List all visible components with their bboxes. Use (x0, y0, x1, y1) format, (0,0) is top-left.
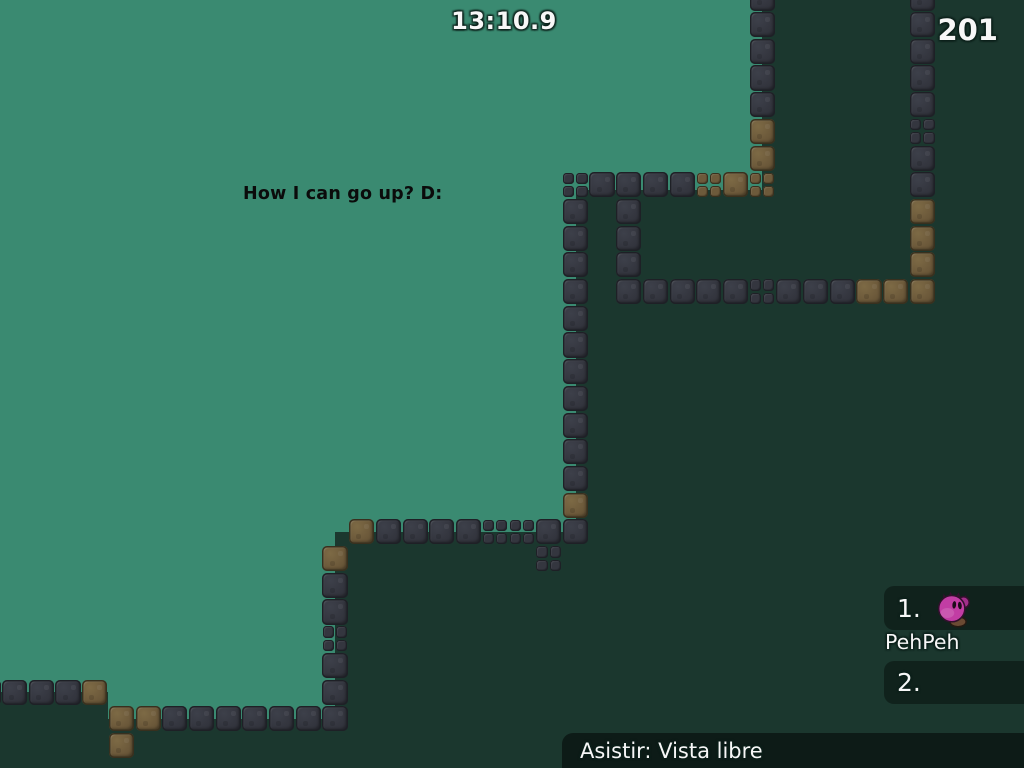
map-tile-dark-block (589, 172, 614, 197)
map-tile-dark-block (563, 386, 588, 411)
map-tile-dark-block (616, 199, 641, 224)
map-tile-small-dark-2x2 (750, 279, 775, 304)
map-tile-dark-block (162, 706, 187, 731)
rank-2-label: 2. (897, 668, 921, 697)
map-tile-dark-block (322, 706, 347, 731)
map-tile-dark-block (189, 706, 214, 731)
map-tile-dark-block (910, 146, 935, 171)
map-tile-small-brown-2x2 (750, 172, 775, 197)
map-tile-dark-block (322, 653, 347, 678)
leaderboard-entry-2: 2. (884, 661, 1024, 704)
map-tile-dark-block (322, 599, 347, 624)
map-tile-small-dark-2x2 (536, 546, 561, 571)
map-tile-dark-block (429, 519, 454, 544)
spectate-mode-label: Asistir: Vista libre (580, 739, 763, 763)
map-tile-small-dark-2x2 (563, 172, 588, 197)
map-tile-dark-block (563, 226, 588, 251)
map-tile-dark-block (830, 279, 855, 304)
hud-counter: 201 (937, 13, 998, 47)
spectate-bar: Asistir: Vista libre (562, 733, 1024, 768)
map-tile-dark-block (0, 680, 1, 705)
map-tile-dark-block (322, 573, 347, 598)
rank-1-label: 1. (897, 594, 921, 623)
map-tile-brown-block (136, 706, 161, 731)
map-tile-dark-block (670, 172, 695, 197)
map-tile-dark-block (242, 706, 267, 731)
race-timer: 13:10.9 (384, 7, 624, 35)
map-tile-dark-block (29, 680, 54, 705)
map-tile-dark-block (750, 39, 775, 64)
map-tile-brown-block (322, 546, 347, 571)
map-tile-small-brown-2x2 (696, 172, 721, 197)
map-tile-brown-block (883, 279, 908, 304)
map-tile-dark-block (910, 12, 935, 37)
map-tile-dark-block (55, 680, 80, 705)
map-tile-dark-block (776, 279, 801, 304)
map-tile-dark-block (536, 519, 561, 544)
map-tile-brown-block (750, 119, 775, 144)
map-tile-small-dark-2x2 (509, 519, 534, 544)
map-tile-dark-block (322, 680, 347, 705)
map-tile-dark-block (616, 252, 641, 277)
map-tile-dark-block (750, 0, 775, 11)
map-tile-dark-block (696, 279, 721, 304)
leaderboard-entry-1: 1. (884, 586, 1024, 630)
map-tile-dark-block (723, 279, 748, 304)
map-tile-dark-block (670, 279, 695, 304)
map-tile-dark-block (456, 519, 481, 544)
map-tile-dark-block (910, 0, 935, 11)
map-tile-dark-block (563, 413, 588, 438)
map-tile-dark-block (563, 359, 588, 384)
map-tile-dark-block (563, 332, 588, 357)
map-tile-brown-block (856, 279, 881, 304)
map-tile-dark-block (616, 226, 641, 251)
map-tile-dark-block (563, 199, 588, 224)
map-tile-dark-block (403, 519, 428, 544)
map-tile-dark-block (563, 279, 588, 304)
map-tile-dark-block (563, 306, 588, 331)
map-tile-dark-block (376, 519, 401, 544)
map-tile-layer (0, 0, 1024, 768)
map-tile-dark-block (750, 92, 775, 117)
map-tile-small-dark-2x2 (322, 626, 347, 651)
map-tile-dark-block (643, 279, 668, 304)
map-tile-dark-block (216, 706, 241, 731)
map-tile-dark-block (563, 519, 588, 544)
map-tile-dark-block (616, 172, 641, 197)
map-tile-dark-block (269, 706, 294, 731)
map-tile-brown-block (349, 519, 374, 544)
map-tile-brown-block (910, 226, 935, 251)
map-tile-dark-block (616, 279, 641, 304)
map-tile-brown-block (109, 733, 134, 758)
map-tile-brown-block (910, 279, 935, 304)
map-tile-dark-block (910, 172, 935, 197)
game-viewport[interactable]: 13:10.9 201 How I can go up? D: 1. PehPe… (0, 0, 1024, 768)
map-tile-brown-block (910, 252, 935, 277)
map-tile-brown-block (82, 680, 107, 705)
map-tile-small-dark-2x2 (483, 519, 508, 544)
map-tile-dark-block (910, 39, 935, 64)
map-tile-brown-block (750, 146, 775, 171)
map-tile-dark-block (563, 439, 588, 464)
map-tile-dark-block (296, 706, 321, 731)
map-tile-dark-block (643, 172, 668, 197)
map-tile-dark-block (910, 92, 935, 117)
map-tile-dark-block (803, 279, 828, 304)
map-tile-small-dark-2x2 (910, 119, 935, 144)
map-tile-dark-block (750, 12, 775, 37)
player-tee-avatar-icon (933, 588, 973, 628)
map-tile-dark-block (910, 65, 935, 90)
player-name: PehPeh (885, 630, 959, 654)
map-tile-brown-block (563, 493, 588, 518)
map-tile-dark-block (563, 252, 588, 277)
map-tile-dark-block (750, 65, 775, 90)
map-tile-dark-block (2, 680, 27, 705)
map-tile-brown-block (109, 706, 134, 731)
map-tile-brown-block (910, 199, 935, 224)
map-tile-dark-block (563, 466, 588, 491)
map-tile-brown-block (723, 172, 748, 197)
broadcast-message: How I can go up? D: (243, 184, 442, 204)
